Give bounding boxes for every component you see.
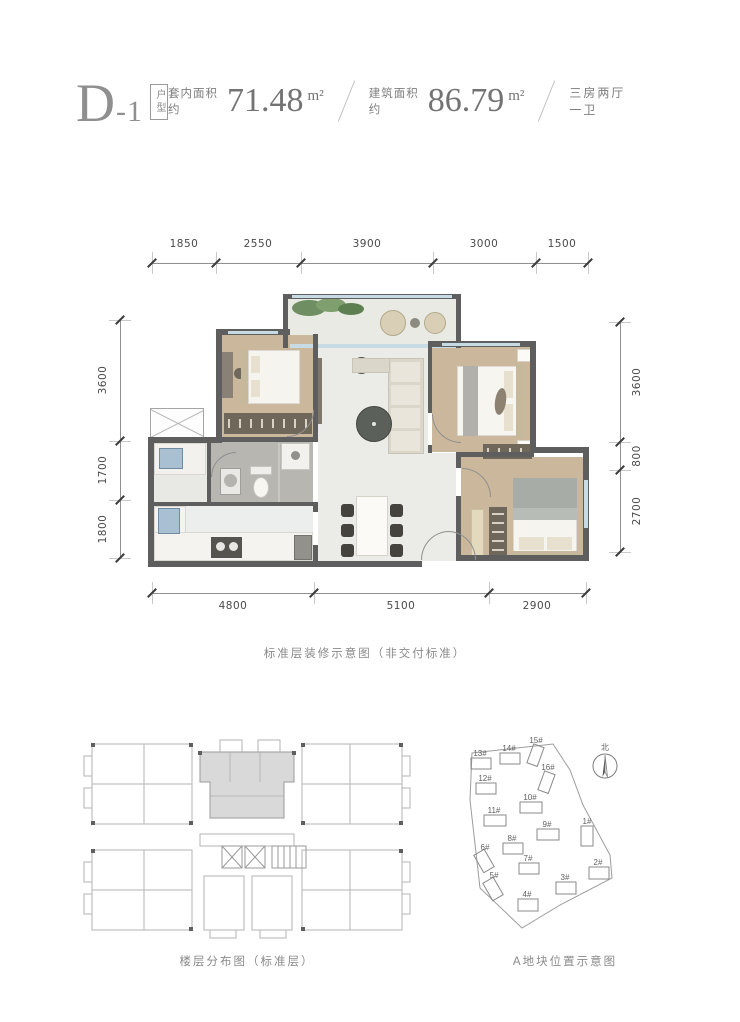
shower-head-icon bbox=[291, 451, 300, 460]
pillow bbox=[251, 380, 260, 397]
pillow bbox=[547, 537, 572, 550]
wall bbox=[313, 334, 318, 438]
building-label: 2# bbox=[594, 858, 603, 867]
wall bbox=[456, 452, 461, 468]
wall bbox=[313, 502, 318, 512]
floor-plan-caption: 标准层装修示意图（非交付标准） bbox=[215, 645, 515, 661]
round-table bbox=[380, 310, 406, 336]
dim-top-2: 2550 bbox=[238, 238, 278, 250]
north-compass-icon: 北 bbox=[593, 743, 617, 778]
shelf-items bbox=[492, 511, 504, 551]
slash-divider bbox=[337, 80, 354, 121]
inner-area-value: 71.48 bbox=[227, 82, 304, 120]
bed-headboard bbox=[241, 350, 248, 404]
bed-blanket bbox=[513, 478, 577, 508]
site-plan-diagram: 1# 2# 3# 4# 5# 6# 7# 8# 9# 10# 11# 12# 1… bbox=[450, 726, 680, 951]
dining-chair bbox=[390, 544, 403, 557]
bathroom-sink bbox=[159, 448, 183, 469]
bedroom3-window bbox=[584, 480, 588, 528]
building-label: 9# bbox=[543, 820, 552, 829]
dim-right-1: 3600 bbox=[631, 364, 643, 400]
dim-bottom-1: 4800 bbox=[213, 600, 253, 612]
dining-chair bbox=[341, 544, 354, 557]
ac-platform bbox=[150, 408, 204, 438]
building-label: 13# bbox=[473, 749, 487, 758]
dim-top-5: 1500 bbox=[542, 238, 582, 250]
building-label: 11# bbox=[488, 806, 501, 815]
burner-icon bbox=[229, 542, 238, 551]
bed-headboard bbox=[516, 364, 525, 438]
pillow bbox=[251, 356, 260, 373]
north-label: 北 bbox=[601, 743, 609, 752]
wall bbox=[148, 561, 422, 567]
site-plan-caption: A地块位置示意图 bbox=[450, 953, 680, 969]
slash-divider bbox=[538, 80, 555, 121]
dining-chair bbox=[341, 524, 354, 537]
floor-distribution-diagram bbox=[82, 726, 412, 948]
pillow bbox=[519, 537, 544, 550]
sofa-cushion bbox=[391, 385, 420, 405]
bed-runner bbox=[463, 366, 478, 436]
dim-bottom-2: 5100 bbox=[381, 600, 421, 612]
toilet bbox=[253, 477, 269, 498]
inner-area-unit: m² bbox=[308, 88, 324, 105]
coffee-table-decor bbox=[372, 422, 376, 426]
built-area-value: 86.79 bbox=[428, 82, 505, 120]
building-label: 10# bbox=[523, 793, 537, 802]
wall bbox=[154, 502, 317, 506]
inner-area-label: 套内面积约 bbox=[168, 85, 219, 117]
highlighted-unit bbox=[200, 752, 294, 818]
built-area-label: 建筑面积约 bbox=[369, 85, 420, 117]
wall bbox=[530, 341, 536, 453]
wall bbox=[456, 294, 461, 348]
floor-distribution-caption: 楼层分布图（标准层） bbox=[82, 953, 412, 969]
dim-bottom-3: 2900 bbox=[517, 600, 557, 612]
sofa-cushion bbox=[391, 408, 420, 428]
wall bbox=[216, 329, 222, 443]
building-label: 6# bbox=[481, 843, 490, 852]
dim-line-right bbox=[620, 322, 621, 552]
shower-glass bbox=[278, 443, 280, 502]
bed-blanket-fold bbox=[513, 508, 577, 520]
bedroom2-window bbox=[228, 331, 278, 334]
built-area-unit: m² bbox=[508, 88, 524, 105]
dim-left-2: 1700 bbox=[97, 452, 109, 488]
brochure-page: D-1 户型 套内面积约 71.48 m² 建筑面积约 86.79 m² 三房两… bbox=[0, 0, 740, 1022]
wall bbox=[530, 447, 589, 453]
dim-top-3: 3900 bbox=[347, 238, 387, 250]
wall bbox=[458, 452, 534, 457]
building-label: 3# bbox=[561, 873, 570, 882]
stairs-icon bbox=[272, 846, 306, 868]
dim-right-2: 800 bbox=[631, 438, 643, 474]
master-window bbox=[442, 343, 520, 346]
round-table bbox=[424, 312, 446, 334]
dim-top-4: 3000 bbox=[464, 238, 504, 250]
elevator-icon bbox=[222, 846, 265, 868]
dining-chair bbox=[341, 504, 354, 517]
side-table bbox=[410, 318, 420, 328]
balcony-window bbox=[292, 295, 452, 298]
dim-left-1: 3600 bbox=[97, 362, 109, 398]
wall bbox=[313, 545, 318, 567]
layout-description: 三房两厅一卫 bbox=[569, 84, 638, 118]
building-label: 8# bbox=[508, 834, 517, 843]
building-label: 4# bbox=[523, 890, 532, 899]
kitchen-sink bbox=[158, 508, 180, 534]
wall bbox=[428, 347, 432, 413]
toilet-tank bbox=[250, 466, 272, 475]
unit-code: D-1 bbox=[76, 72, 143, 134]
dim-line-top bbox=[152, 263, 588, 264]
building-label: 1# bbox=[583, 817, 592, 826]
wall bbox=[428, 445, 432, 453]
dim-right-3: 2700 bbox=[631, 493, 643, 529]
wall bbox=[221, 437, 318, 442]
dining-chair bbox=[390, 504, 403, 517]
building-label: 14# bbox=[502, 744, 516, 753]
fridge bbox=[294, 535, 312, 560]
plant-icon bbox=[338, 303, 364, 315]
dining-chair bbox=[390, 524, 403, 537]
pillow bbox=[504, 404, 513, 431]
wall bbox=[283, 294, 288, 348]
burner-icon bbox=[216, 542, 225, 551]
dim-top-1: 1850 bbox=[164, 238, 204, 250]
building-label: 16# bbox=[541, 763, 555, 772]
sofa-cushion bbox=[391, 431, 420, 451]
desk bbox=[222, 352, 233, 398]
sofa-side bbox=[352, 358, 390, 373]
building-label: 12# bbox=[478, 774, 492, 783]
dining-table bbox=[356, 496, 388, 556]
sofa-cushion bbox=[391, 362, 420, 382]
unit-type-tag: 户型 bbox=[150, 84, 168, 120]
dim-left-3: 1800 bbox=[97, 511, 109, 547]
building-label: 5# bbox=[490, 871, 499, 880]
dim-line-bottom bbox=[152, 593, 586, 594]
building-label: 7# bbox=[524, 854, 533, 863]
header-metrics-row: 套内面积约 71.48 m² 建筑面积约 86.79 m² 三房两厅一卫 bbox=[168, 76, 638, 126]
building-label: 15# bbox=[529, 736, 543, 745]
